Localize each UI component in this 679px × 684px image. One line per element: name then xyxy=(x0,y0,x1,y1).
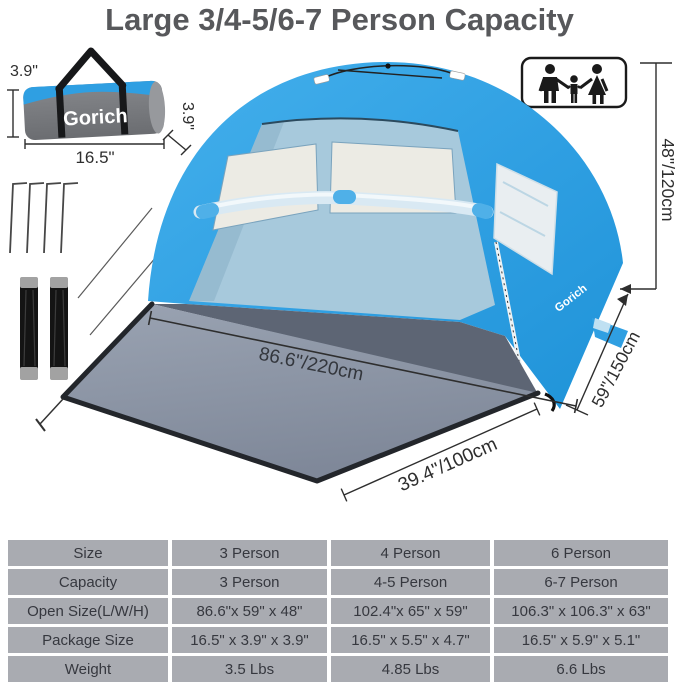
guy-rope xyxy=(78,208,152,298)
dim-arrowhead xyxy=(617,294,628,306)
spec-row-label: Size xyxy=(8,540,168,566)
bag-depth-dim-line xyxy=(168,135,186,150)
spec-row-label: Weight xyxy=(8,656,168,682)
spec-cell: 102.4"x 65" x 59" xyxy=(331,598,490,624)
spec-cell: 16.5" x 3.9" x 3.9" xyxy=(172,627,327,653)
spec-cell: 4.85 Lbs xyxy=(331,656,490,682)
spec-cell: 86.6"x 59" x 48" xyxy=(172,598,327,624)
spec-cell: 106.3" x 106.3" x 63" xyxy=(494,598,668,624)
spec-cell: 3 Person xyxy=(172,569,327,595)
dim-tick xyxy=(341,489,347,502)
spec-cell: 4-5 Person xyxy=(331,569,490,595)
spec-cell: 6.6 Lbs xyxy=(494,656,668,682)
carry-bag: Gorich 3.9" 3.9" 16.5" xyxy=(7,47,196,167)
tube-wrap xyxy=(203,210,212,212)
tent-poles xyxy=(20,277,68,380)
dim-tick xyxy=(566,405,588,415)
tent-stakes xyxy=(10,183,78,253)
spec-cell: 16.5" x 5.9" x 5.1" xyxy=(494,627,668,653)
pole-bundle-icon xyxy=(50,277,68,380)
spec-cell: 3.5 Lbs xyxy=(172,656,327,682)
spec-row-label: Open Size(L/W/H) xyxy=(8,598,168,624)
spec-cell: 3 Person xyxy=(172,540,327,566)
spec-cell: 6-7 Person xyxy=(494,569,668,595)
dim-arrowhead xyxy=(620,284,631,294)
bag-width-label: 16.5" xyxy=(75,148,114,167)
bag-handle xyxy=(57,49,123,88)
tube-wrap xyxy=(479,210,486,212)
tent-height-label: 48"/120cm xyxy=(658,138,678,221)
family-capacity-icon xyxy=(522,58,626,107)
spec-table: Size 3 Person 4 Person 6 Person Capacity… xyxy=(8,540,668,682)
spec-row-label: Package Size xyxy=(8,627,168,653)
bag-depth-label: 3.9" xyxy=(179,102,196,130)
pole-hub xyxy=(385,63,390,68)
stake-icon xyxy=(27,183,44,253)
product-infographic: Large 3/4-5/6-7 Person Capacity xyxy=(0,0,679,684)
pole-bundle-icon xyxy=(20,277,38,380)
dim-tick xyxy=(534,403,540,416)
stake-icon xyxy=(61,183,78,253)
spec-cell: 16.5" x 5.5" x 4.7" xyxy=(331,627,490,653)
spec-row-label: Capacity xyxy=(8,569,168,595)
corner-rope xyxy=(40,399,63,424)
spec-cell: 6 Person xyxy=(494,540,668,566)
stake-icon xyxy=(44,183,61,253)
bag-height-label: 3.9" xyxy=(10,63,38,80)
stake-icon xyxy=(10,183,27,253)
spec-cell: 4 Person xyxy=(331,540,490,566)
bag-logo: Gorich xyxy=(63,105,129,130)
